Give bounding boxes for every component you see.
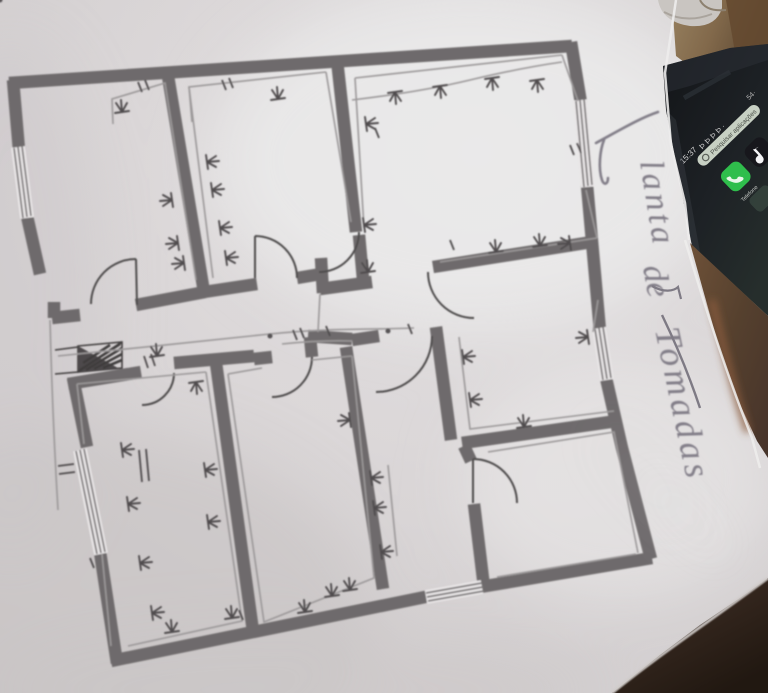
svg-text:de: de [635, 262, 677, 300]
